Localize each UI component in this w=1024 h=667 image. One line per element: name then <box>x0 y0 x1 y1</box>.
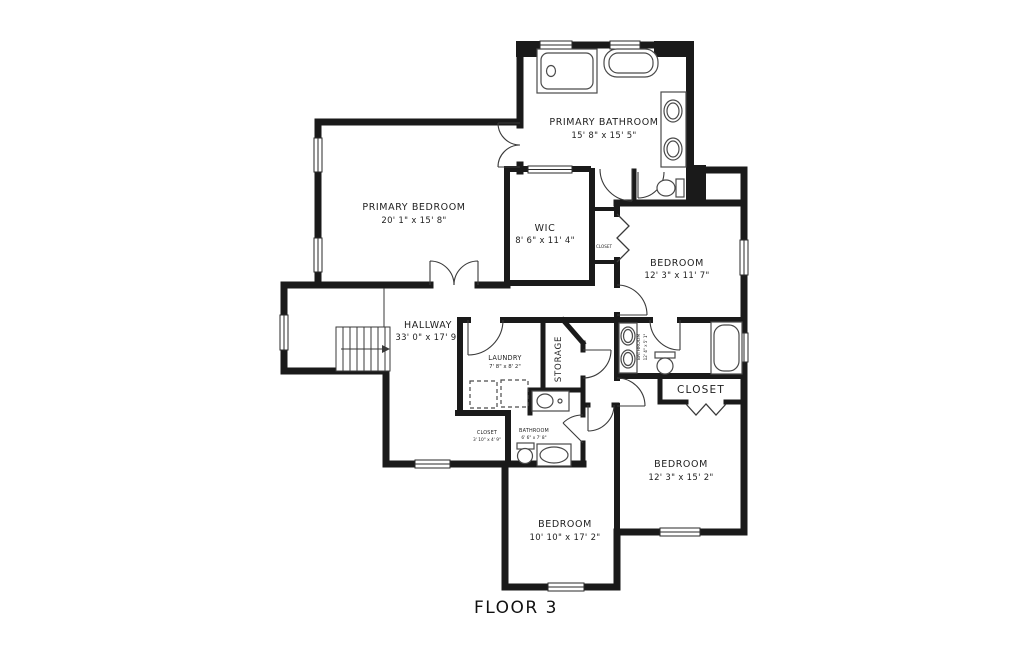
room-label-primary-bedroom: PRIMARY BEDROOM <box>362 202 465 213</box>
bifold-door <box>617 214 629 262</box>
window <box>660 528 700 536</box>
room-label-primary-bathroom: PRIMARY BATHROOM <box>549 117 658 128</box>
toilet <box>517 443 534 464</box>
room-label-closet-small: CLOSET <box>477 430 497 436</box>
room-dims-closet-small: 3' 10" x 4' 9" <box>473 437 501 443</box>
room-label-bedroom-bottom-right: BEDROOM <box>654 459 708 470</box>
window <box>548 583 584 591</box>
window <box>610 41 640 49</box>
room-label-laundry: LAUNDRY <box>488 354 522 362</box>
window <box>314 238 322 272</box>
door-arc <box>617 285 647 315</box>
french-door-arc <box>454 261 478 285</box>
room-dims-bathroom-middle: 12' 4" x 5' 1" <box>643 334 648 361</box>
room-dims-bedroom-bottom: 10' 10" x 17' 2" <box>530 533 601 543</box>
room-dims-primary-bathroom: 15' 8" x 15' 5" <box>571 131 636 141</box>
window <box>415 460 450 468</box>
door-arc <box>563 415 583 443</box>
door-arc <box>600 169 632 201</box>
door-arc <box>650 320 680 350</box>
room-label-storage: STORAGE <box>554 336 564 383</box>
floor-plan-drawing: PRIMARY BATHROOM 15' 8" x 15' 5" PRIMARY… <box>0 0 1024 667</box>
room-label-bedroom-bottom: BEDROOM <box>538 519 592 530</box>
room-dims-bedroom-bottom-right: 12' 3" x 15' 2" <box>648 473 713 483</box>
room-label-bedroom-top-right: BEDROOM <box>650 258 704 269</box>
shower <box>537 49 597 93</box>
door-arc <box>588 405 614 431</box>
door-arc <box>468 320 503 355</box>
room-label-bathroom-middle: BATHROOM <box>636 334 642 361</box>
floor-title: FLOOR 3 <box>474 598 558 618</box>
door-arc <box>617 378 645 406</box>
room-label-bathroom-small: BATHROOM <box>519 428 549 434</box>
room-label-closet-right: CLOSET <box>677 384 725 396</box>
room-dims-laundry: 7' 8" x 8' 2" <box>489 364 521 370</box>
bathtub <box>711 322 742 374</box>
vanity-sink <box>532 391 569 411</box>
toilet <box>655 352 675 374</box>
window <box>740 240 748 275</box>
bathtub <box>537 444 571 466</box>
room-dims-bedroom-top-right: 12' 3" x 11' 7" <box>644 271 709 281</box>
bifold-door <box>686 404 726 415</box>
door-arc <box>583 350 611 378</box>
room-dims-wic: 8' 6" x 11' 4" <box>515 236 575 246</box>
double-vanity-sink <box>661 92 686 167</box>
room-label-hallway: HALLWAY <box>404 320 452 331</box>
room-dims-bathroom-small: 6' 6" x 7' 8" <box>521 435 546 441</box>
window <box>280 315 288 350</box>
bathtub <box>604 49 658 77</box>
room-label-wic: WIC <box>535 223 556 234</box>
floor-plan-page: PRIMARY BATHROOM 15' 8" x 15' 5" PRIMARY… <box>0 0 1024 667</box>
window <box>540 41 572 49</box>
window <box>314 138 322 172</box>
room-label-closet-niche: CLOSET <box>596 244 612 249</box>
french-door-arc <box>430 261 454 285</box>
cased-opening <box>528 166 572 173</box>
double-vanity-sink <box>619 323 637 373</box>
staircase <box>336 288 390 371</box>
room-dims-hallway: 33' 0" x 17' 9" <box>395 333 460 343</box>
washer-dryer-placeholder <box>470 380 528 408</box>
toilet <box>657 179 684 197</box>
room-dims-primary-bedroom: 20' 1" x 15' 8" <box>381 216 446 226</box>
